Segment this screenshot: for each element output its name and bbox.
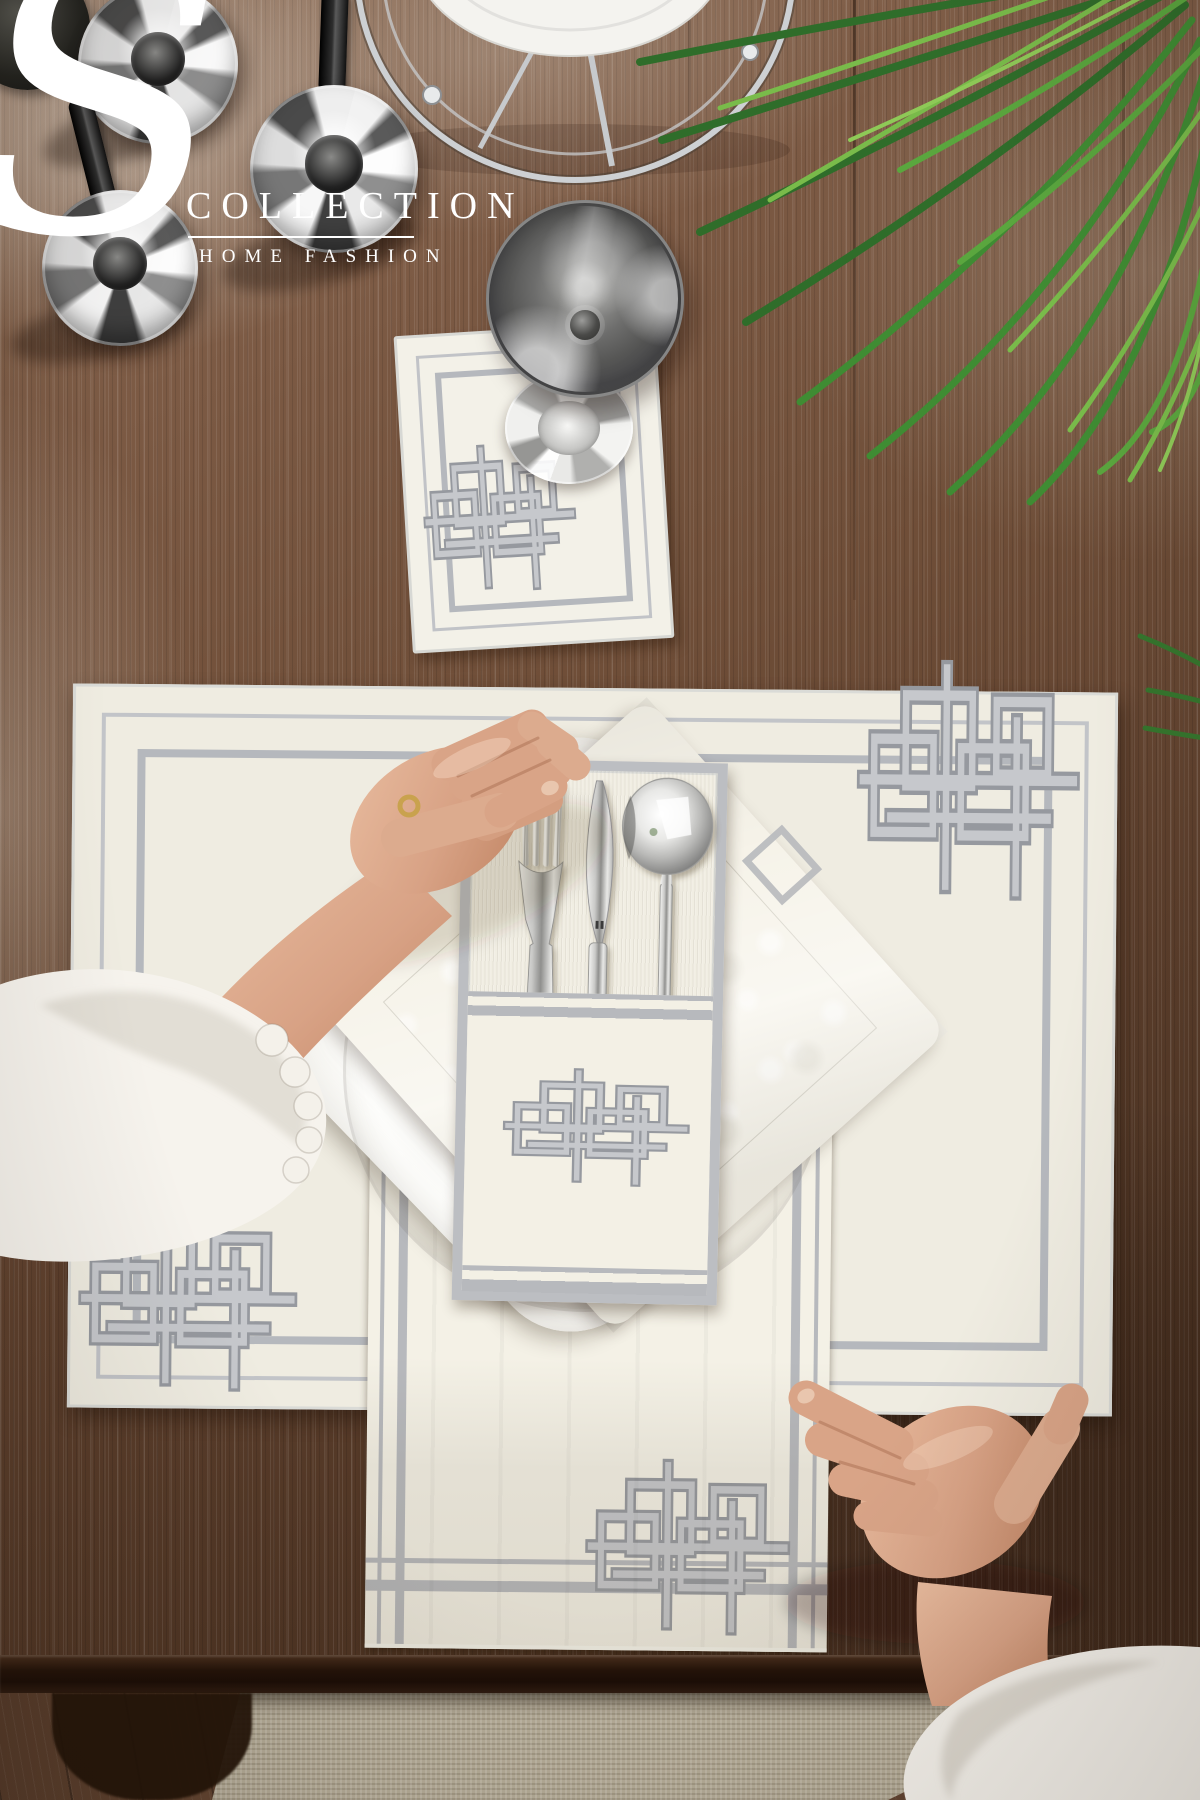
brand-initial: S — [0, 0, 229, 290]
brand-divider-line — [188, 236, 414, 238]
right-arm-and-hand — [785, 1370, 1200, 1800]
photo-table-setting: S COLLECTION HOME FASHION — [0, 0, 1200, 1800]
brand-subtitle: HOME FASHION — [199, 246, 449, 268]
left-arm-and-hand — [0, 716, 629, 1262]
brand-name: COLLECTION — [186, 184, 525, 228]
